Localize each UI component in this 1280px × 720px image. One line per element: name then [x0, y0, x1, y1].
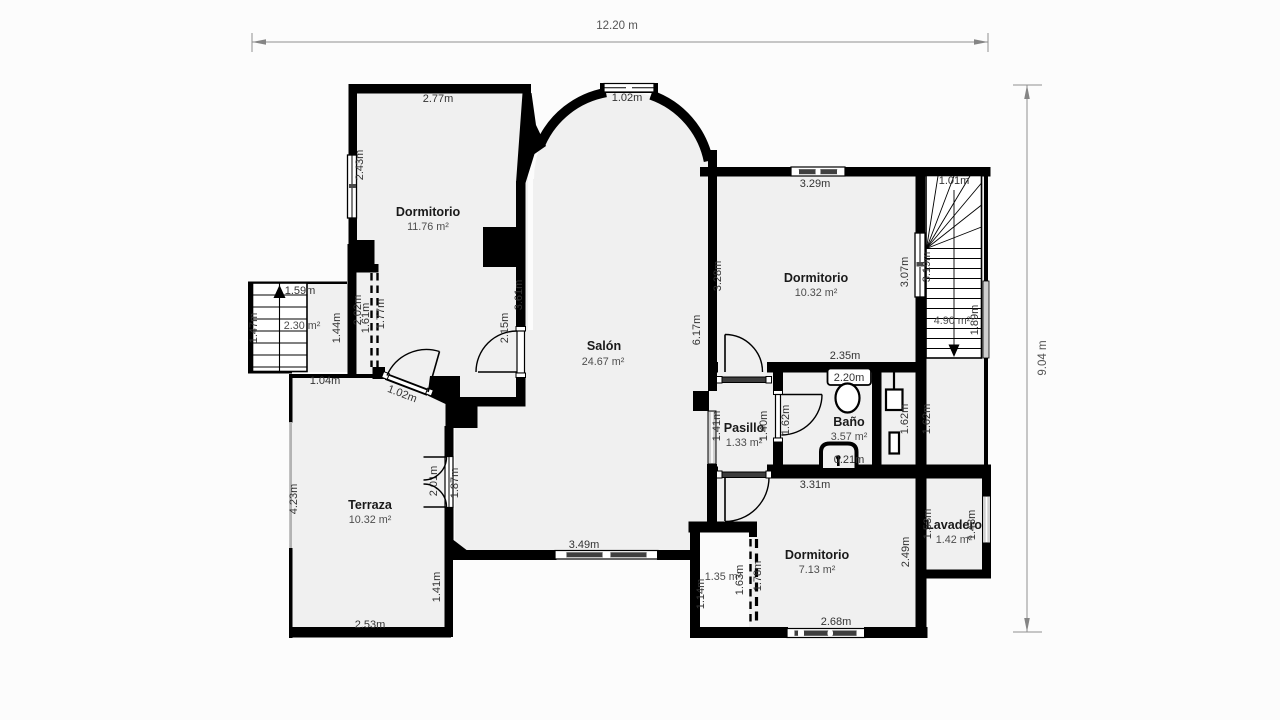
- svg-text:1.40m: 1.40m: [758, 411, 770, 442]
- svg-text:24.67 m²: 24.67 m²: [582, 356, 625, 368]
- svg-text:7.13 m²: 7.13 m²: [799, 564, 836, 576]
- svg-text:Baño: Baño: [833, 415, 865, 429]
- svg-text:1.63m: 1.63m: [734, 565, 746, 596]
- svg-text:1.78m: 1.78m: [752, 561, 764, 592]
- svg-text:9.04 m: 9.04 m: [1037, 340, 1049, 375]
- svg-text:1.02m: 1.02m: [612, 92, 643, 104]
- svg-text:Dormitorio: Dormitorio: [785, 548, 850, 562]
- svg-text:1.77m: 1.77m: [375, 299, 387, 330]
- svg-text:10.32 m²: 10.32 m²: [349, 514, 392, 526]
- svg-text:4.90 m²: 4.90 m²: [934, 315, 971, 327]
- svg-text:1.14m: 1.14m: [695, 579, 707, 610]
- svg-text:1.61m: 1.61m: [360, 303, 372, 334]
- svg-text:1.43m: 1.43m: [966, 510, 978, 541]
- svg-text:10.32 m²: 10.32 m²: [795, 287, 838, 299]
- svg-text:3.07m: 3.07m: [899, 257, 911, 288]
- svg-text:2.68m: 2.68m: [821, 616, 852, 628]
- svg-text:1.53m: 1.53m: [922, 509, 934, 540]
- svg-text:0.21m: 0.21m: [834, 454, 865, 466]
- svg-text:3.19m: 3.19m: [921, 252, 933, 283]
- svg-text:3.49m: 3.49m: [569, 539, 600, 551]
- svg-text:6.17m: 6.17m: [691, 315, 703, 346]
- svg-text:3.57 m²: 3.57 m²: [831, 431, 868, 443]
- svg-text:3.29m: 3.29m: [800, 178, 831, 190]
- svg-text:1.44m: 1.44m: [331, 313, 343, 344]
- svg-text:2.49m: 2.49m: [900, 537, 912, 568]
- svg-text:1.41m: 1.41m: [711, 411, 723, 442]
- svg-text:4.23m: 4.23m: [288, 484, 300, 515]
- svg-text:1.89m: 1.89m: [969, 305, 981, 336]
- svg-text:1.87m: 1.87m: [449, 468, 461, 499]
- svg-text:2.77m: 2.77m: [423, 93, 454, 105]
- svg-text:2.53m: 2.53m: [355, 619, 386, 631]
- svg-text:11.76 m²: 11.76 m²: [407, 221, 449, 233]
- svg-text:1.47m: 1.47m: [248, 313, 260, 344]
- svg-text:1.01m: 1.01m: [939, 175, 970, 187]
- svg-text:Terraza: Terraza: [348, 498, 393, 512]
- svg-text:2.20m: 2.20m: [834, 372, 865, 384]
- svg-text:1.41m: 1.41m: [431, 572, 443, 603]
- svg-text:1.59m: 1.59m: [285, 285, 316, 297]
- svg-text:2.15m: 2.15m: [499, 313, 511, 344]
- svg-text:2.01m: 2.01m: [428, 466, 440, 497]
- svg-text:1.62m: 1.62m: [921, 404, 933, 435]
- svg-text:Salón: Salón: [587, 339, 621, 353]
- svg-text:12.20 m: 12.20 m: [596, 20, 638, 32]
- svg-text:3.31m: 3.31m: [800, 479, 831, 491]
- svg-text:2.35m: 2.35m: [830, 350, 861, 362]
- svg-text:2.43m: 2.43m: [354, 150, 366, 181]
- svg-text:1.04m: 1.04m: [310, 375, 341, 387]
- svg-text:1.62m: 1.62m: [899, 404, 911, 435]
- svg-text:3.61m: 3.61m: [513, 280, 525, 311]
- svg-text:Dormitorio: Dormitorio: [396, 205, 461, 219]
- svg-text:2.30 m²: 2.30 m²: [284, 320, 321, 332]
- svg-text:1.62m: 1.62m: [780, 405, 792, 436]
- svg-text:3.28m: 3.28m: [712, 261, 724, 292]
- svg-text:Dormitorio: Dormitorio: [784, 271, 849, 285]
